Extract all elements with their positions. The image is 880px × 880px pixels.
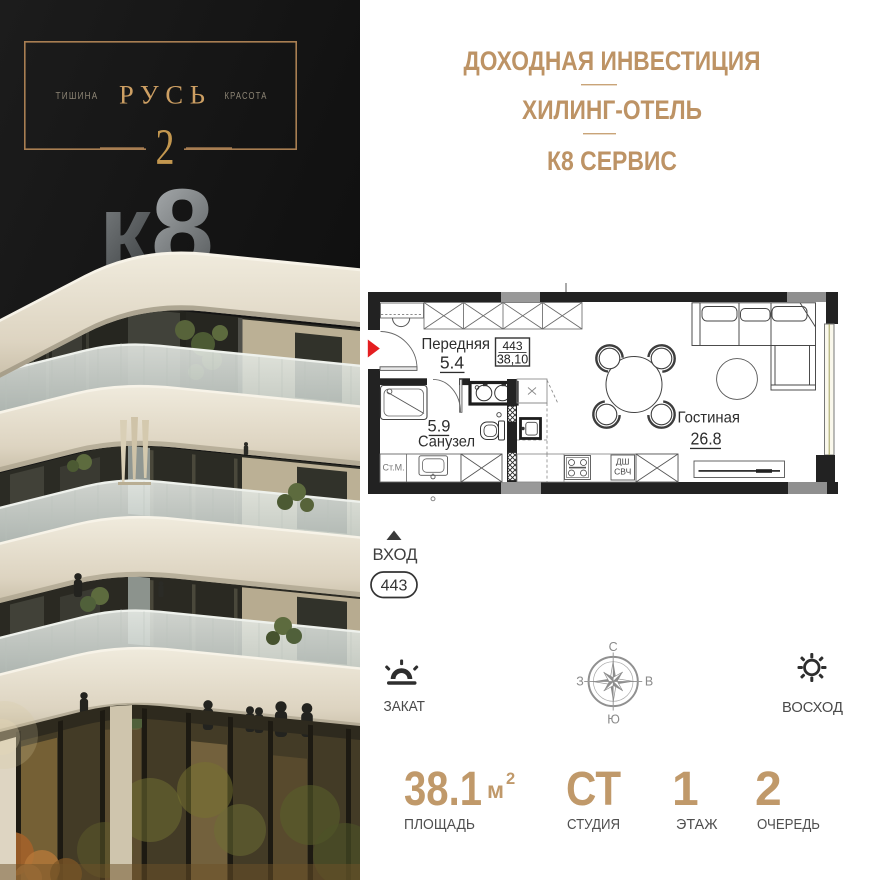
svg-text:1: 1 [672, 763, 699, 816]
svg-text:ХИЛИНГ-ОТЕЛЬ: ХИЛИНГ-ОТЕЛЬ [522, 95, 702, 125]
svg-text:ЗАКАТ: ЗАКАТ [384, 698, 426, 715]
svg-text:КРАСОТА: КРАСОТА [225, 91, 268, 102]
svg-text:СВЧ: СВЧ [614, 467, 631, 477]
svg-text:38.1: 38.1 [404, 763, 482, 816]
svg-text:Ст.М.: Ст.М. [383, 463, 405, 473]
svg-text:ЭТАЖ: ЭТАЖ [676, 817, 718, 833]
svg-text:ПЛОЩАДЬ: ПЛОЩАДЬ [404, 817, 475, 833]
svg-text:443: 443 [502, 339, 522, 353]
svg-text:СТ: СТ [566, 763, 621, 816]
svg-text:Ю: Ю [607, 713, 620, 727]
svg-text:38,10: 38,10 [497, 353, 528, 367]
svg-text:ВОСХОД: ВОСХОД [782, 699, 843, 716]
svg-text:м: м [487, 777, 504, 803]
svg-text:ДШ: ДШ [616, 457, 630, 467]
svg-text:Санузел: Санузел [418, 434, 475, 451]
svg-text:Передняя: Передняя [422, 336, 491, 353]
svg-text:26.8: 26.8 [691, 429, 722, 449]
svg-text:С: С [609, 640, 618, 654]
svg-text:В: В [645, 675, 653, 689]
svg-text:2: 2 [156, 120, 175, 176]
svg-text:ВХОД: ВХОД [373, 545, 418, 564]
svg-text:З: З [576, 675, 584, 689]
svg-text:2: 2 [506, 770, 515, 788]
svg-text:ДОХОДНАЯ ИНВЕСТИЦИЯ: ДОХОДНАЯ ИНВЕСТИЦИЯ [464, 46, 761, 76]
svg-text:ОЧЕРЕДЬ: ОЧЕРЕДЬ [757, 817, 820, 833]
svg-text:Гостиная: Гостиная [678, 410, 741, 427]
svg-text:ТИШИНА: ТИШИНА [56, 91, 99, 102]
svg-text:5.4: 5.4 [440, 353, 465, 373]
svg-text:К8 СЕРВИС: К8 СЕРВИС [547, 146, 677, 176]
svg-text:443: 443 [381, 578, 408, 595]
svg-text:2: 2 [755, 763, 782, 816]
svg-text:СТУДИЯ: СТУДИЯ [567, 817, 620, 833]
